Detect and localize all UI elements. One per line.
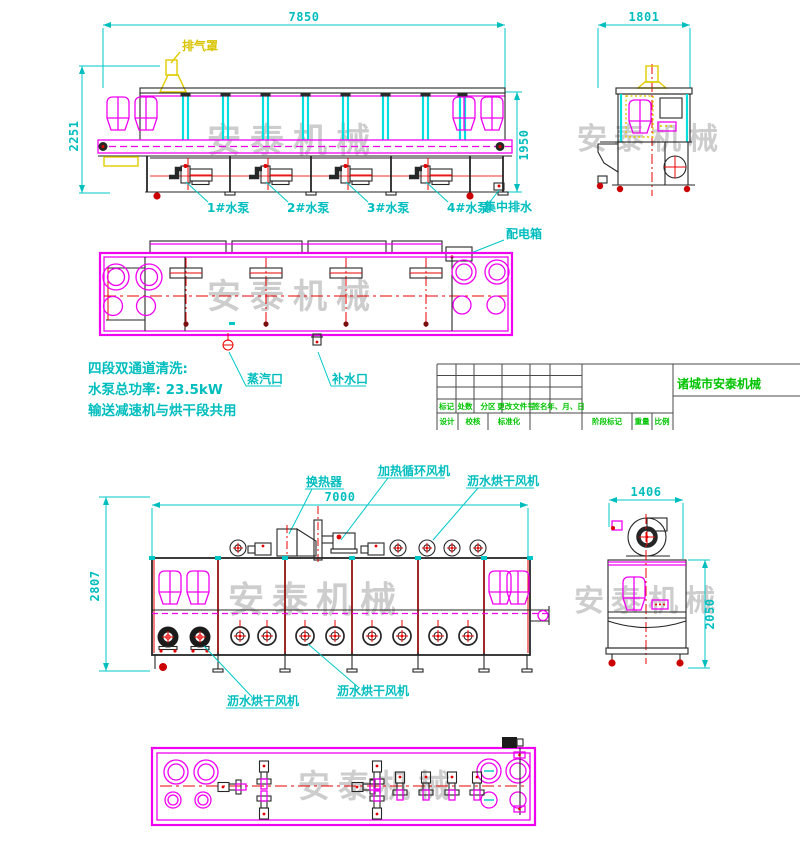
pump-frame [145, 156, 508, 200]
drying-fan-bottom-left-label: 沥水烘干风机 [227, 693, 299, 708]
lower-view-legs [155, 655, 532, 672]
top-side-elevation-view: 安泰机械 7850 2251 1950 排气罩 [67, 10, 542, 253]
bottom-side-elevation-view: 安泰机械 换热器 加热循环风机 沥水烘干风机 7000 2807 [88, 463, 549, 708]
pump-4 [409, 164, 452, 185]
title-block-header-row: 标记 处数 分区 更改文件号 签名 年、月、日 [438, 401, 585, 411]
bottom-plan-view: 安泰机械 [152, 737, 535, 825]
svg-text:阶段标记: 阶段标记 [592, 416, 622, 426]
watermark-text: 安泰机械 [207, 277, 379, 317]
cad-drawing-sheet: 安泰机械 7850 2251 1950 排气罩 [0, 0, 800, 855]
watermark-text: 安泰机械 [228, 580, 404, 621]
svg-text:年、月、日: 年、月、日 [547, 401, 585, 411]
roof-covers [150, 241, 442, 253]
pump-2-label: 2#水泵 [287, 200, 329, 215]
dim-2050: 2050 [703, 599, 717, 630]
blower-fan [611, 518, 670, 556]
heating-fan-label: 加热循环风机 [377, 463, 450, 478]
heat-exchanger-label: 换热器 [306, 474, 343, 489]
drain-label: 集中排水 [483, 199, 533, 214]
dim-7850: 7850 [289, 10, 320, 24]
note-line-3: 输送减速机与烘干段共用 [88, 402, 237, 419]
svg-text:比例: 比例 [655, 416, 670, 426]
pump-labels: 1#水泵 2#水泵 3#水泵 4#水泵 [186, 182, 489, 215]
plan-circles-left [164, 760, 218, 808]
svg-text:校核: 校核 [466, 416, 481, 426]
svg-text:分区: 分区 [481, 401, 496, 411]
drying-fan-bottom-mid-label: 沥水烘干风机 [337, 683, 409, 698]
dim-1406: 1406 [631, 485, 662, 499]
pump-3-label: 3#水泵 [367, 200, 409, 215]
drawing-svg: 安泰机械 7850 2251 1950 排气罩 [0, 0, 800, 855]
exhaust-hood [160, 60, 186, 92]
plan-circles-right [477, 759, 530, 808]
dim-1801: 1801 [629, 10, 660, 24]
note-line-1: 四段双通道清洗: [88, 360, 188, 377]
title-block-bottom-row: 设计 校核 标准化 阶段标记 重量 比例 [440, 416, 670, 426]
dim-2251: 2251 [67, 121, 81, 152]
svg-text:标记: 标记 [438, 401, 454, 411]
svg-text:更改文件号: 更改文件号 [497, 401, 535, 411]
pump-1-label: 1#水泵 [207, 200, 249, 215]
watermark-text: 安泰机械 [207, 121, 379, 161]
pump-3 [329, 164, 372, 185]
outlet-compartment [452, 257, 509, 331]
note-line-2: 水泵总功率: 23.5kW [88, 381, 223, 398]
svg-text:标准化: 标准化 [497, 416, 521, 426]
svg-text:设计: 设计 [440, 416, 455, 426]
drain-points [183, 321, 428, 326]
bottom-end-view: 安泰机械 1406 [574, 485, 722, 668]
notes-text: 四段双通道清洗: 水泵总功率: 23.5kW 输送减速机与烘干段共用 [88, 360, 237, 419]
watermark-text: 安泰机械 [577, 122, 725, 157]
pump-1 [169, 164, 212, 185]
drying-fan-top-label: 沥水烘干风机 [467, 473, 539, 488]
svg-text:签名: 签名 [532, 401, 548, 411]
svg-text:处数: 处数 [457, 401, 473, 411]
dim-1950: 1950 [517, 130, 531, 161]
company-name: 诸城市安泰机械 [677, 376, 761, 391]
makeup-water-label: 补水口 [331, 371, 368, 386]
svg-text:重量: 重量 [635, 416, 650, 426]
steam-port-label: 蒸汽口 [247, 371, 283, 386]
casters [153, 192, 508, 200]
watermark-text: 安泰机械 [574, 584, 722, 619]
top-end-view: 安泰机械 1801 [577, 10, 725, 196]
pump-2 [249, 164, 292, 185]
dim-2807: 2807 [88, 571, 102, 602]
power-box-label: 配电箱 [506, 226, 542, 241]
dim-7000: 7000 [325, 490, 356, 504]
roof-equipment [230, 540, 486, 556]
exhaust-hood-label: 排气罩 [182, 38, 218, 53]
title-block-table: 标记 处数 分区 更改文件号 签名 年、月、日 设计 校核 标准化 阶段标记 重… [437, 364, 800, 430]
